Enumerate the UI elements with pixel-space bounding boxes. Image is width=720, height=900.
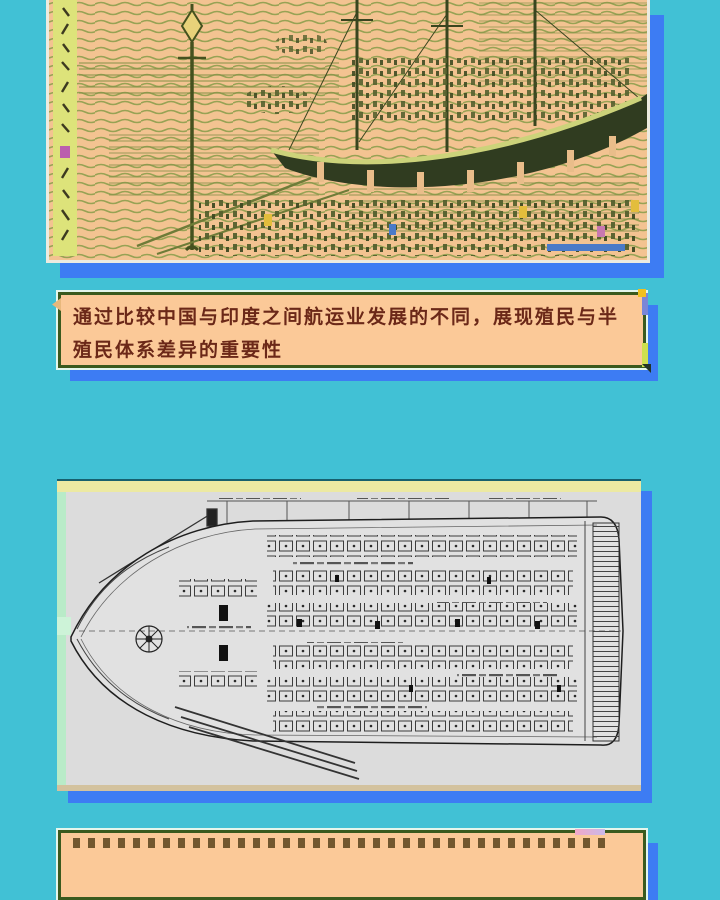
caption-text-partial [73,838,609,848]
edge-accent-pink [575,829,605,835]
woodblock-print-art [49,0,647,260]
caption-box-bottom-partial [58,830,646,900]
corner-accent-gold [638,289,646,297]
edge-accent-lime [642,343,648,367]
plan-bottom-line [57,785,641,791]
caption-box-top: 通过比较中国与印度之间航运业发展的不同，展现殖民与半殖民体系差异的重要性 [58,292,646,368]
plan-stern-block [593,523,619,741]
plan-left-band [57,492,66,788]
woodblock-print-image [46,0,650,263]
plan-top-band [57,481,641,492]
plan-capstan [136,626,162,652]
seal-stamp [60,146,70,158]
corner-fold-decoration [52,298,61,311]
plan-top-line [57,479,641,481]
caption-text: 通过比较中国与印度之间航运业发展的不同，展现殖民与半殖民体系差异的重要性 [61,295,629,367]
deck-plan-image [57,479,641,791]
deck-plan-art [57,479,641,791]
